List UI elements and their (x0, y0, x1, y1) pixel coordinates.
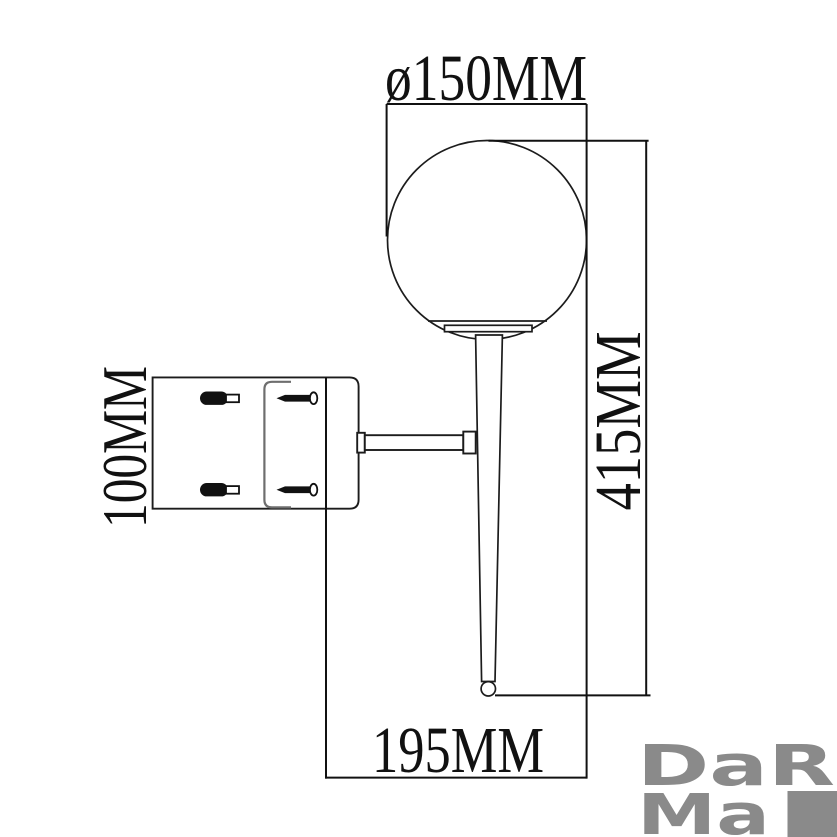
arm-stem-connector (463, 432, 475, 454)
technical-drawing-page: ø150MM 415MM 100MM 195MM DaR Ma (0, 0, 837, 837)
wall-lamp-dimension-drawing: ø150MM 415MM 100MM 195MM DaR Ma (0, 0, 837, 837)
arm-wall-flange (357, 433, 365, 453)
projection-label: 195MM (372, 714, 544, 787)
height-label: 415MM (582, 332, 655, 511)
wall-backplate (153, 377, 359, 508)
diameter-label: ø150MM (385, 42, 587, 115)
stem-tip-ball-icon (481, 682, 495, 696)
backplate-height-label: 100MM (89, 366, 160, 528)
brand-logo-square-icon (788, 791, 837, 837)
brand-logo-line2: Ma (637, 783, 770, 837)
arm-tube (365, 435, 464, 450)
brand-logo: DaR Ma (637, 734, 837, 837)
globe-collar (445, 325, 533, 331)
